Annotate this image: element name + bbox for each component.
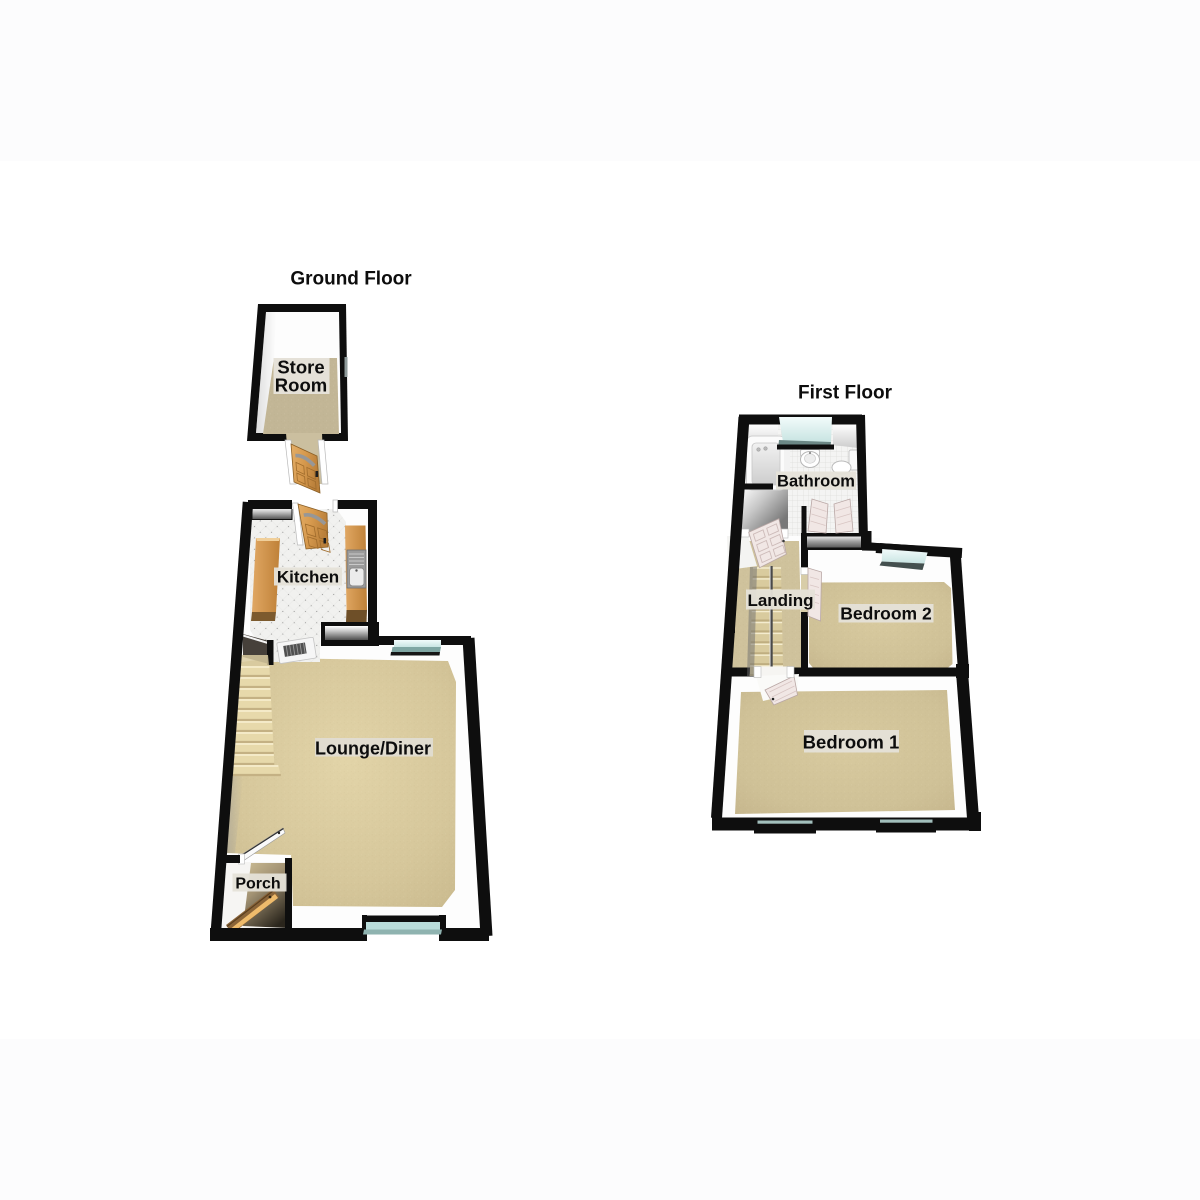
svg-text:Bedroom 1: Bedroom 1 xyxy=(803,732,900,753)
svg-text:Lounge/Diner: Lounge/Diner xyxy=(315,739,431,759)
svg-text:Kitchen: Kitchen xyxy=(277,568,339,587)
svg-text:Room: Room xyxy=(275,375,327,396)
svg-text:First Floor: First Floor xyxy=(798,383,893,404)
svg-text:Porch: Porch xyxy=(235,876,280,893)
svg-text:Landing: Landing xyxy=(747,591,813,610)
svg-text:Bathroom: Bathroom xyxy=(777,472,855,490)
svg-text:Ground Floor: Ground Floor xyxy=(290,269,412,290)
svg-text:Bedroom 2: Bedroom 2 xyxy=(840,604,932,624)
